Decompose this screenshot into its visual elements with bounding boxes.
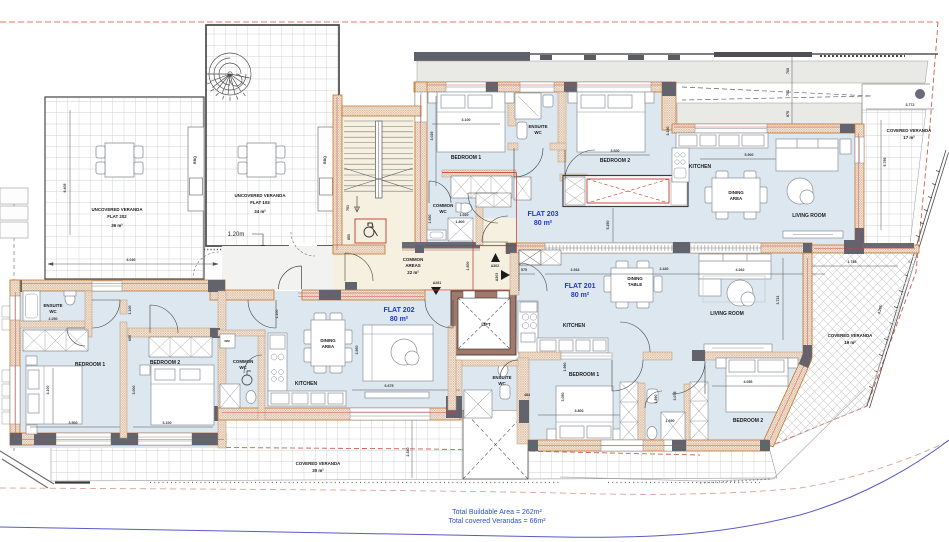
svg-text:LIVING ROOM: LIVING ROOM — [792, 213, 826, 219]
svg-text:UNCOVERED VERANDA: UNCOVERED VERANDA — [92, 207, 144, 212]
svg-text:DINING: DINING — [320, 338, 336, 343]
svg-text:FLAT 202: FLAT 202 — [107, 214, 127, 219]
svg-text:701: 701 — [786, 90, 790, 96]
svg-text:8.405: 8.405 — [63, 184, 67, 193]
svg-text:WC: WC — [534, 130, 542, 135]
svg-text:COVERED VERANDA: COVERED VERANDA — [887, 128, 932, 133]
svg-text:FLAT 201: FLAT 201 — [565, 283, 596, 290]
svg-text:A303: A303 — [495, 273, 499, 282]
svg-text:36 m²: 36 m² — [111, 223, 123, 228]
svg-text:3.772: 3.772 — [906, 103, 915, 107]
svg-text:KITCHEN: KITCHEN — [563, 323, 586, 329]
svg-text:1.785: 1.785 — [848, 260, 857, 264]
svg-text:4.056: 4.056 — [744, 380, 753, 384]
svg-text:22 m²: 22 m² — [407, 270, 419, 275]
svg-text:751: 751 — [346, 205, 350, 211]
svg-text:3.190: 3.190 — [666, 127, 670, 136]
svg-text:COMMON: COMMON — [433, 203, 454, 208]
svg-text:80 m²: 80 m² — [390, 316, 409, 323]
svg-text:LIFT: LIFT — [481, 322, 491, 327]
svg-text:WC: WC — [439, 209, 447, 214]
svg-text:3.100: 3.100 — [46, 386, 50, 395]
svg-text:1.650: 1.650 — [428, 215, 432, 224]
svg-text:TABLE: TABLE — [628, 282, 642, 287]
svg-text:AREAS: AREAS — [405, 263, 420, 268]
svg-text:ENSUITE: ENSUITE — [43, 303, 62, 308]
svg-text:1.20m: 1.20m — [228, 232, 245, 238]
svg-text:1.020: 1.020 — [460, 213, 469, 217]
svg-text:1.100: 1.100 — [275, 310, 279, 319]
svg-text:3.100: 3.100 — [462, 118, 471, 122]
svg-text:850: 850 — [347, 234, 351, 240]
svg-text:3.025: 3.025 — [430, 132, 434, 141]
svg-text:3.800: 3.800 — [575, 409, 584, 413]
svg-text:COMMON: COMMON — [403, 257, 424, 262]
svg-text:A302: A302 — [491, 264, 500, 268]
svg-text:FLAT 103: FLAT 103 — [250, 200, 270, 205]
svg-text:575: 575 — [521, 268, 527, 272]
svg-text:BBQ: BBQ — [323, 156, 327, 164]
svg-text:1.500: 1.500 — [466, 262, 470, 271]
svg-text:3.100: 3.100 — [163, 421, 172, 425]
svg-text:765: 765 — [786, 68, 790, 74]
svg-text:19 m²: 19 m² — [844, 340, 856, 345]
svg-text:3.075: 3.075 — [673, 392, 677, 401]
svg-text:17 m²: 17 m² — [903, 135, 915, 140]
svg-text:BBQ: BBQ — [193, 156, 197, 164]
svg-text:BEDROOM 2: BEDROOM 2 — [600, 158, 631, 164]
svg-text:5.795: 5.795 — [883, 158, 887, 167]
svg-text:KITCHEN: KITCHEN — [295, 381, 318, 387]
svg-text:30 m²: 30 m² — [312, 468, 324, 473]
svg-text:3.600: 3.600 — [611, 149, 620, 153]
svg-text:5.900: 5.900 — [745, 153, 754, 157]
svg-text:1.990: 1.990 — [563, 363, 567, 372]
svg-text:3.500: 3.500 — [69, 421, 78, 425]
svg-text:A281: A281 — [433, 281, 442, 285]
svg-text:3.050: 3.050 — [561, 393, 565, 402]
svg-text:Total Buildable Area = 262m²: Total Buildable Area = 262m² — [452, 509, 542, 516]
svg-text:WC: WC — [239, 365, 247, 370]
svg-text:2.250: 2.250 — [49, 317, 58, 321]
svg-text:ENSUITE: ENSUITE — [528, 124, 547, 129]
svg-text:6.675: 6.675 — [385, 384, 394, 388]
svg-text:Total covered Verandas = 66m²: Total covered Verandas = 66m² — [448, 518, 546, 525]
svg-text:COVERED VERANDA: COVERED VERANDA — [296, 461, 341, 466]
svg-text:1.890: 1.890 — [654, 395, 658, 404]
svg-text:6.030: 6.030 — [127, 258, 136, 262]
svg-text:LIVING ROOM: LIVING ROOM — [710, 311, 744, 317]
svg-text:80 m²: 80 m² — [534, 220, 553, 227]
svg-text:2.440: 2.440 — [660, 267, 669, 271]
svg-text:FLAT 202: FLAT 202 — [384, 307, 415, 314]
svg-text:1.100: 1.100 — [128, 306, 132, 315]
svg-text:2.340: 2.340 — [406, 448, 410, 457]
svg-text:484: 484 — [524, 393, 530, 397]
svg-text:2.932: 2.932 — [571, 268, 580, 272]
svg-text:4.262: 4.262 — [736, 268, 745, 272]
svg-text:1.800: 1.800 — [456, 220, 465, 224]
svg-text:3.950: 3.950 — [355, 346, 359, 355]
svg-text:34 m²: 34 m² — [254, 209, 266, 214]
svg-text:BEDROOM 1: BEDROOM 1 — [451, 155, 482, 161]
svg-text:80 m²: 80 m² — [571, 292, 590, 299]
svg-text:DINING: DINING — [728, 190, 744, 195]
svg-text:AREA: AREA — [322, 344, 335, 349]
svg-text:875: 875 — [786, 111, 790, 117]
svg-text:AREA: AREA — [730, 196, 743, 201]
svg-text:BEDROOM 2: BEDROOM 2 — [733, 418, 764, 424]
svg-text:WM: WM — [224, 339, 230, 343]
svg-text:3.721: 3.721 — [776, 296, 780, 305]
svg-text:FLAT 203: FLAT 203 — [528, 211, 559, 218]
svg-text:WC: WC — [49, 309, 57, 314]
svg-text:1.690: 1.690 — [666, 419, 675, 423]
svg-text:600: 600 — [128, 335, 132, 341]
svg-text:COVERED VERANDA: COVERED VERANDA — [828, 333, 873, 338]
svg-text:UNCOVERED VERANDA: UNCOVERED VERANDA — [235, 193, 287, 198]
svg-text:BEDROOM 1: BEDROOM 1 — [569, 372, 600, 378]
svg-text:DINING: DINING — [627, 276, 643, 281]
svg-text:3.000: 3.000 — [132, 386, 136, 395]
svg-text:KITCHEN: KITCHEN — [689, 164, 712, 170]
svg-text:5.250: 5.250 — [606, 221, 610, 230]
